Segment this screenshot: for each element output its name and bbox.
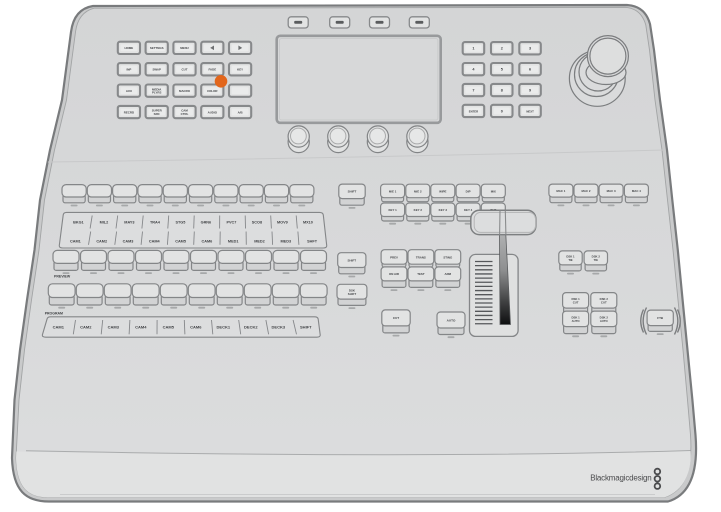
svg-text:0: 0 bbox=[501, 109, 503, 113]
svg-text:7: 7 bbox=[472, 88, 474, 92]
svg-text:FADE: FADE bbox=[208, 68, 216, 72]
svg-text:CUT: CUT bbox=[573, 301, 579, 305]
svg-text:MIL2: MIL2 bbox=[100, 220, 109, 224]
svg-text:SHFT: SHFT bbox=[307, 240, 318, 244]
svg-text:ON AIR: ON AIR bbox=[389, 272, 400, 276]
svg-text:DIP: DIP bbox=[466, 189, 471, 193]
svg-text:AUDIO: AUDIO bbox=[208, 110, 218, 114]
svg-text:MED2: MED2 bbox=[254, 240, 265, 244]
svg-text:6: 6 bbox=[529, 67, 531, 71]
svg-text:CAM6: CAM6 bbox=[202, 240, 213, 244]
svg-text:CAM5: CAM5 bbox=[175, 240, 186, 244]
svg-text:KEY 2: KEY 2 bbox=[414, 208, 423, 212]
svg-text:CUT: CUT bbox=[601, 301, 607, 305]
svg-text:DECK1: DECK1 bbox=[217, 325, 231, 330]
svg-text:M/E 1: M/E 1 bbox=[389, 189, 397, 193]
svg-text:SCO8: SCO8 bbox=[252, 220, 262, 224]
svg-text:MAC 4: MAC 4 bbox=[632, 189, 641, 193]
svg-text:SHIFT: SHIFT bbox=[347, 258, 356, 262]
svg-text:TEST: TEST bbox=[417, 272, 425, 276]
svg-text:MAC 3: MAC 3 bbox=[607, 189, 616, 193]
svg-text:MOV9: MOV9 bbox=[277, 220, 288, 224]
svg-text:PREVIEW: PREVIEW bbox=[54, 275, 71, 279]
svg-text:RECRD: RECRD bbox=[124, 110, 134, 114]
svg-text:COLOR: COLOR bbox=[207, 89, 218, 93]
svg-text:8: 8 bbox=[501, 88, 503, 92]
svg-text:PVC7: PVC7 bbox=[226, 220, 236, 224]
svg-text:CAM1: CAM1 bbox=[70, 240, 81, 244]
svg-text:KEY 3: KEY 3 bbox=[439, 208, 448, 212]
svg-text:AUTO: AUTO bbox=[572, 319, 581, 323]
svg-text:MED1: MED1 bbox=[228, 240, 239, 244]
svg-text:WIPE: WIPE bbox=[439, 189, 446, 193]
svg-text:KEY: KEY bbox=[237, 68, 243, 72]
svg-text:CAM2: CAM2 bbox=[80, 325, 92, 330]
svg-text:SRC: SRC bbox=[154, 112, 161, 116]
svg-text:AUX: AUX bbox=[126, 89, 132, 93]
svg-text:STING: STING bbox=[443, 255, 453, 259]
svg-text:MENU: MENU bbox=[180, 46, 189, 50]
svg-text:CAM4: CAM4 bbox=[149, 240, 161, 244]
svg-text:MED3: MED3 bbox=[281, 240, 292, 244]
svg-text:9: 9 bbox=[529, 88, 531, 92]
svg-text:DECK2: DECK2 bbox=[244, 325, 258, 330]
svg-text:DECK3: DECK3 bbox=[272, 325, 286, 330]
svg-text:TRA4: TRA4 bbox=[150, 220, 161, 224]
svg-text:M/E 2: M/E 2 bbox=[414, 189, 422, 193]
svg-text:SHIFT: SHIFT bbox=[348, 190, 357, 194]
svg-text:CAM1: CAM1 bbox=[53, 325, 65, 330]
svg-text:STG5: STG5 bbox=[175, 220, 185, 224]
svg-text:NEXT: NEXT bbox=[526, 109, 534, 113]
svg-text:TRANS: TRANS bbox=[416, 255, 426, 259]
svg-text:INP: INP bbox=[126, 68, 131, 72]
svg-text:CAM3: CAM3 bbox=[108, 325, 120, 330]
svg-text:TIE: TIE bbox=[594, 258, 598, 262]
svg-text:Blackmagicdesign: Blackmagicdesign bbox=[590, 473, 651, 482]
svg-text:MX10: MX10 bbox=[303, 220, 313, 224]
svg-text:SETTNGS: SETTNGS bbox=[150, 46, 164, 50]
svg-text:PROGRAM: PROGRAM bbox=[45, 311, 63, 315]
svg-text:TIE: TIE bbox=[568, 258, 572, 262]
svg-text:CAM2: CAM2 bbox=[96, 240, 107, 244]
svg-text:ENTER: ENTER bbox=[469, 109, 478, 113]
svg-text:BKG1: BKG1 bbox=[73, 220, 84, 224]
svg-text:PLYRS: PLYRS bbox=[152, 91, 161, 95]
svg-text:FTB: FTB bbox=[657, 316, 664, 320]
svg-text:MAY3: MAY3 bbox=[124, 220, 134, 224]
svg-text:ARM: ARM bbox=[445, 272, 452, 276]
svg-text:SHIFT: SHIFT bbox=[348, 292, 357, 296]
svg-text:CAM5: CAM5 bbox=[163, 325, 175, 330]
svg-text:SHIFT: SHIFT bbox=[300, 325, 312, 330]
svg-text:CTRL: CTRL bbox=[181, 112, 189, 116]
svg-text:3: 3 bbox=[529, 47, 531, 51]
svg-text:AUTO: AUTO bbox=[600, 319, 609, 323]
svg-text:1: 1 bbox=[472, 47, 474, 51]
svg-text:MAC 1: MAC 1 bbox=[556, 189, 565, 193]
svg-text:CUT: CUT bbox=[182, 68, 188, 72]
svg-text:GRN6: GRN6 bbox=[201, 220, 212, 224]
svg-text:MACRO: MACRO bbox=[179, 89, 191, 93]
svg-text:CUT: CUT bbox=[393, 316, 399, 320]
svg-text:PREV: PREV bbox=[390, 255, 398, 259]
svg-text:MIX: MIX bbox=[491, 189, 496, 193]
svg-text:SWAP: SWAP bbox=[152, 68, 161, 72]
svg-text:A/B: A/B bbox=[238, 110, 243, 114]
svg-text:KEY 1: KEY 1 bbox=[388, 208, 397, 212]
svg-text:KEY 4: KEY 4 bbox=[464, 208, 473, 212]
svg-text:MAC 2: MAC 2 bbox=[582, 189, 591, 193]
svg-text:AUTO: AUTO bbox=[447, 318, 456, 322]
svg-text:CAM3: CAM3 bbox=[123, 240, 134, 244]
svg-text:5: 5 bbox=[501, 67, 503, 71]
svg-text:2: 2 bbox=[501, 47, 503, 51]
svg-text:HOME: HOME bbox=[125, 46, 134, 50]
svg-text:CAM4: CAM4 bbox=[135, 325, 147, 330]
svg-text:CAM6: CAM6 bbox=[190, 325, 202, 330]
